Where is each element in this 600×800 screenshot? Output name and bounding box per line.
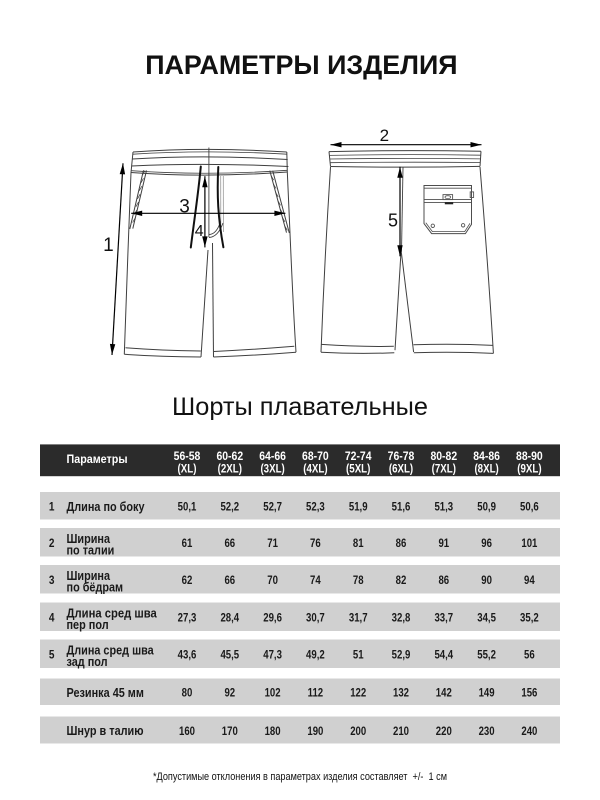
svg-text:90: 90 [481,573,492,587]
svg-text:Шнур в талию: Шнур в талию [67,723,144,738]
svg-text:1: 1 [103,235,114,256]
svg-text:52,3: 52,3 [306,500,325,514]
svg-text:76: 76 [310,536,321,550]
svg-text:32,8: 32,8 [392,611,411,625]
svg-text:по талии: по талии [67,543,115,558]
svg-text:(2XL): (2XL) [218,462,242,476]
svg-text:82: 82 [396,573,407,587]
svg-text:70: 70 [267,573,278,587]
svg-text:52,9: 52,9 [392,648,411,662]
svg-text:160: 160 [179,724,195,738]
svg-text:92: 92 [224,686,235,700]
svg-text:1: 1 [49,500,55,514]
svg-text:81: 81 [353,536,364,550]
svg-text:(3XL): (3XL) [260,462,284,476]
svg-text:55,2: 55,2 [477,648,496,662]
svg-text:240: 240 [521,724,537,738]
svg-text:94: 94 [524,573,535,587]
svg-text:(5XL): (5XL) [346,462,370,476]
svg-text:28,4: 28,4 [220,611,239,625]
svg-text:по бёдрам: по бёдрам [67,580,124,595]
svg-text:62: 62 [182,573,193,587]
svg-text:3: 3 [179,196,190,217]
svg-text:190: 190 [307,724,323,738]
svg-text:86: 86 [396,536,407,550]
svg-text:30,7: 30,7 [306,611,325,625]
svg-text:45,5: 45,5 [220,648,239,662]
svg-text:200: 200 [350,724,366,738]
svg-text:112: 112 [308,686,324,700]
svg-text:2: 2 [49,536,55,550]
svg-text:(XL): (XL) [178,462,197,476]
svg-text:80: 80 [182,686,193,700]
svg-text:5: 5 [49,648,55,662]
svg-text:3: 3 [49,573,55,587]
svg-text:230: 230 [479,724,495,738]
svg-text:102: 102 [265,686,281,700]
svg-text:Параметры: Параметры [67,452,128,466]
svg-text:43,6: 43,6 [178,648,197,662]
svg-text:(7XL): (7XL) [432,462,456,476]
svg-text:Длина по боку: Длина по боку [67,499,146,514]
svg-text:29,6: 29,6 [263,611,282,625]
svg-text:27,3: 27,3 [178,611,197,625]
svg-text:56: 56 [524,648,535,662]
svg-text:*Допустимые отклонения в парам: *Допустимые отклонения в параметрах изде… [153,771,447,783]
svg-text:78: 78 [353,573,364,587]
svg-text:180: 180 [265,724,281,738]
svg-text:50,1: 50,1 [178,500,197,514]
svg-text:35,2: 35,2 [520,611,539,625]
svg-text:51,9: 51,9 [349,500,368,514]
svg-text:170: 170 [222,724,238,738]
svg-text:5: 5 [388,211,398,231]
svg-text:(8XL): (8XL) [474,462,498,476]
svg-text:Шорты плавательные: Шорты плавательные [172,393,428,421]
svg-text:(6XL): (6XL) [389,462,413,476]
svg-text:132: 132 [393,686,409,700]
svg-text:4: 4 [49,611,55,625]
svg-text:(4XL): (4XL) [303,462,327,476]
svg-text:52,7: 52,7 [263,500,282,514]
svg-text:33,7: 33,7 [434,611,453,625]
svg-text:142: 142 [436,686,452,700]
svg-text:71: 71 [267,536,278,550]
svg-text:220: 220 [436,724,452,738]
svg-text:54,4: 54,4 [434,648,453,662]
svg-text:51,6: 51,6 [392,500,411,514]
svg-text:зад пол: зад пол [67,654,108,669]
svg-text:86: 86 [438,573,449,587]
svg-text:(9XL): (9XL) [517,462,541,476]
svg-text:91: 91 [438,536,449,550]
svg-text:2: 2 [380,126,389,145]
svg-text:61: 61 [182,536,193,550]
svg-text:4: 4 [195,223,204,240]
svg-text:149: 149 [479,686,495,700]
svg-text:210: 210 [393,724,409,738]
svg-text:51,3: 51,3 [434,500,453,514]
svg-text:49,2: 49,2 [306,648,325,662]
svg-text:96: 96 [481,536,492,550]
svg-text:31,7: 31,7 [349,611,368,625]
svg-text:122: 122 [350,686,366,700]
svg-text:101: 101 [521,536,537,550]
svg-text:пер пол: пер пол [67,617,109,632]
svg-text:50,9: 50,9 [477,500,496,514]
svg-text:52,2: 52,2 [220,500,239,514]
svg-text:ПАРАМЕТРЫ ИЗДЕЛИЯ: ПАРАМЕТРЫ ИЗДЕЛИЯ [145,50,457,80]
svg-text:47,3: 47,3 [263,648,282,662]
svg-text:Резинка 45 мм: Резинка 45 мм [67,685,144,700]
svg-text:66: 66 [224,536,235,550]
svg-text:51: 51 [353,648,364,662]
svg-text:50,6: 50,6 [520,500,539,514]
svg-text:156: 156 [521,686,537,700]
svg-text:34,5: 34,5 [477,611,496,625]
svg-text:66: 66 [224,573,235,587]
svg-text:74: 74 [310,573,321,587]
